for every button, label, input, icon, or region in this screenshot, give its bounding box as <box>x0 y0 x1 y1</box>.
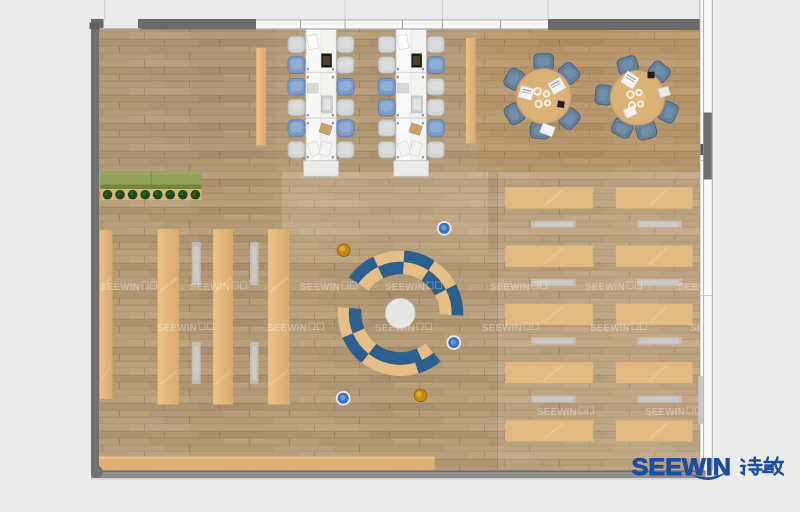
svg-text:SEEWIN: SEEWIN <box>482 323 522 334</box>
svg-text:SEEWIN: SEEWIN <box>190 282 230 293</box>
svg-text:SEEWIN: SEEWIN <box>267 323 307 334</box>
svg-text:SEEWIN: SEEWIN <box>590 323 630 334</box>
svg-text:SEEWIN: SEEWIN <box>375 323 415 334</box>
svg-text:SEEWIN: SEEWIN <box>490 282 530 293</box>
svg-text:SEEWIN: SEEWIN <box>585 282 625 293</box>
svg-text:SEEWIN: SEEWIN <box>537 407 577 418</box>
svg-text:SEEWIN: SEEWIN <box>385 282 425 293</box>
svg-text:SEEWIN: SEEWIN <box>157 323 197 334</box>
svg-text:SEEWIN: SEEWIN <box>100 282 140 293</box>
svg-text:SEEWIN: SEEWIN <box>300 282 340 293</box>
svg-text:SEEWIN: SEEWIN <box>645 407 685 418</box>
